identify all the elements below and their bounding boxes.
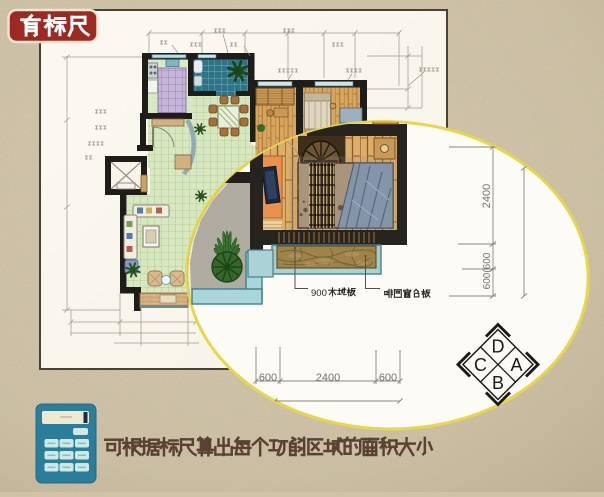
svg-text:600: 600 xyxy=(259,372,277,384)
svg-text:600(600: 600(600 xyxy=(482,252,493,289)
svg-text:A: A xyxy=(510,355,522,375)
svg-text:2400: 2400 xyxy=(481,184,493,208)
svg-text:600: 600 xyxy=(379,372,397,384)
svg-text:B: B xyxy=(492,373,504,393)
svg-text:900: 900 xyxy=(311,288,327,299)
svg-text:2400: 2400 xyxy=(316,372,340,384)
svg-text:D: D xyxy=(492,337,505,357)
svg-text:C: C xyxy=(474,355,487,375)
